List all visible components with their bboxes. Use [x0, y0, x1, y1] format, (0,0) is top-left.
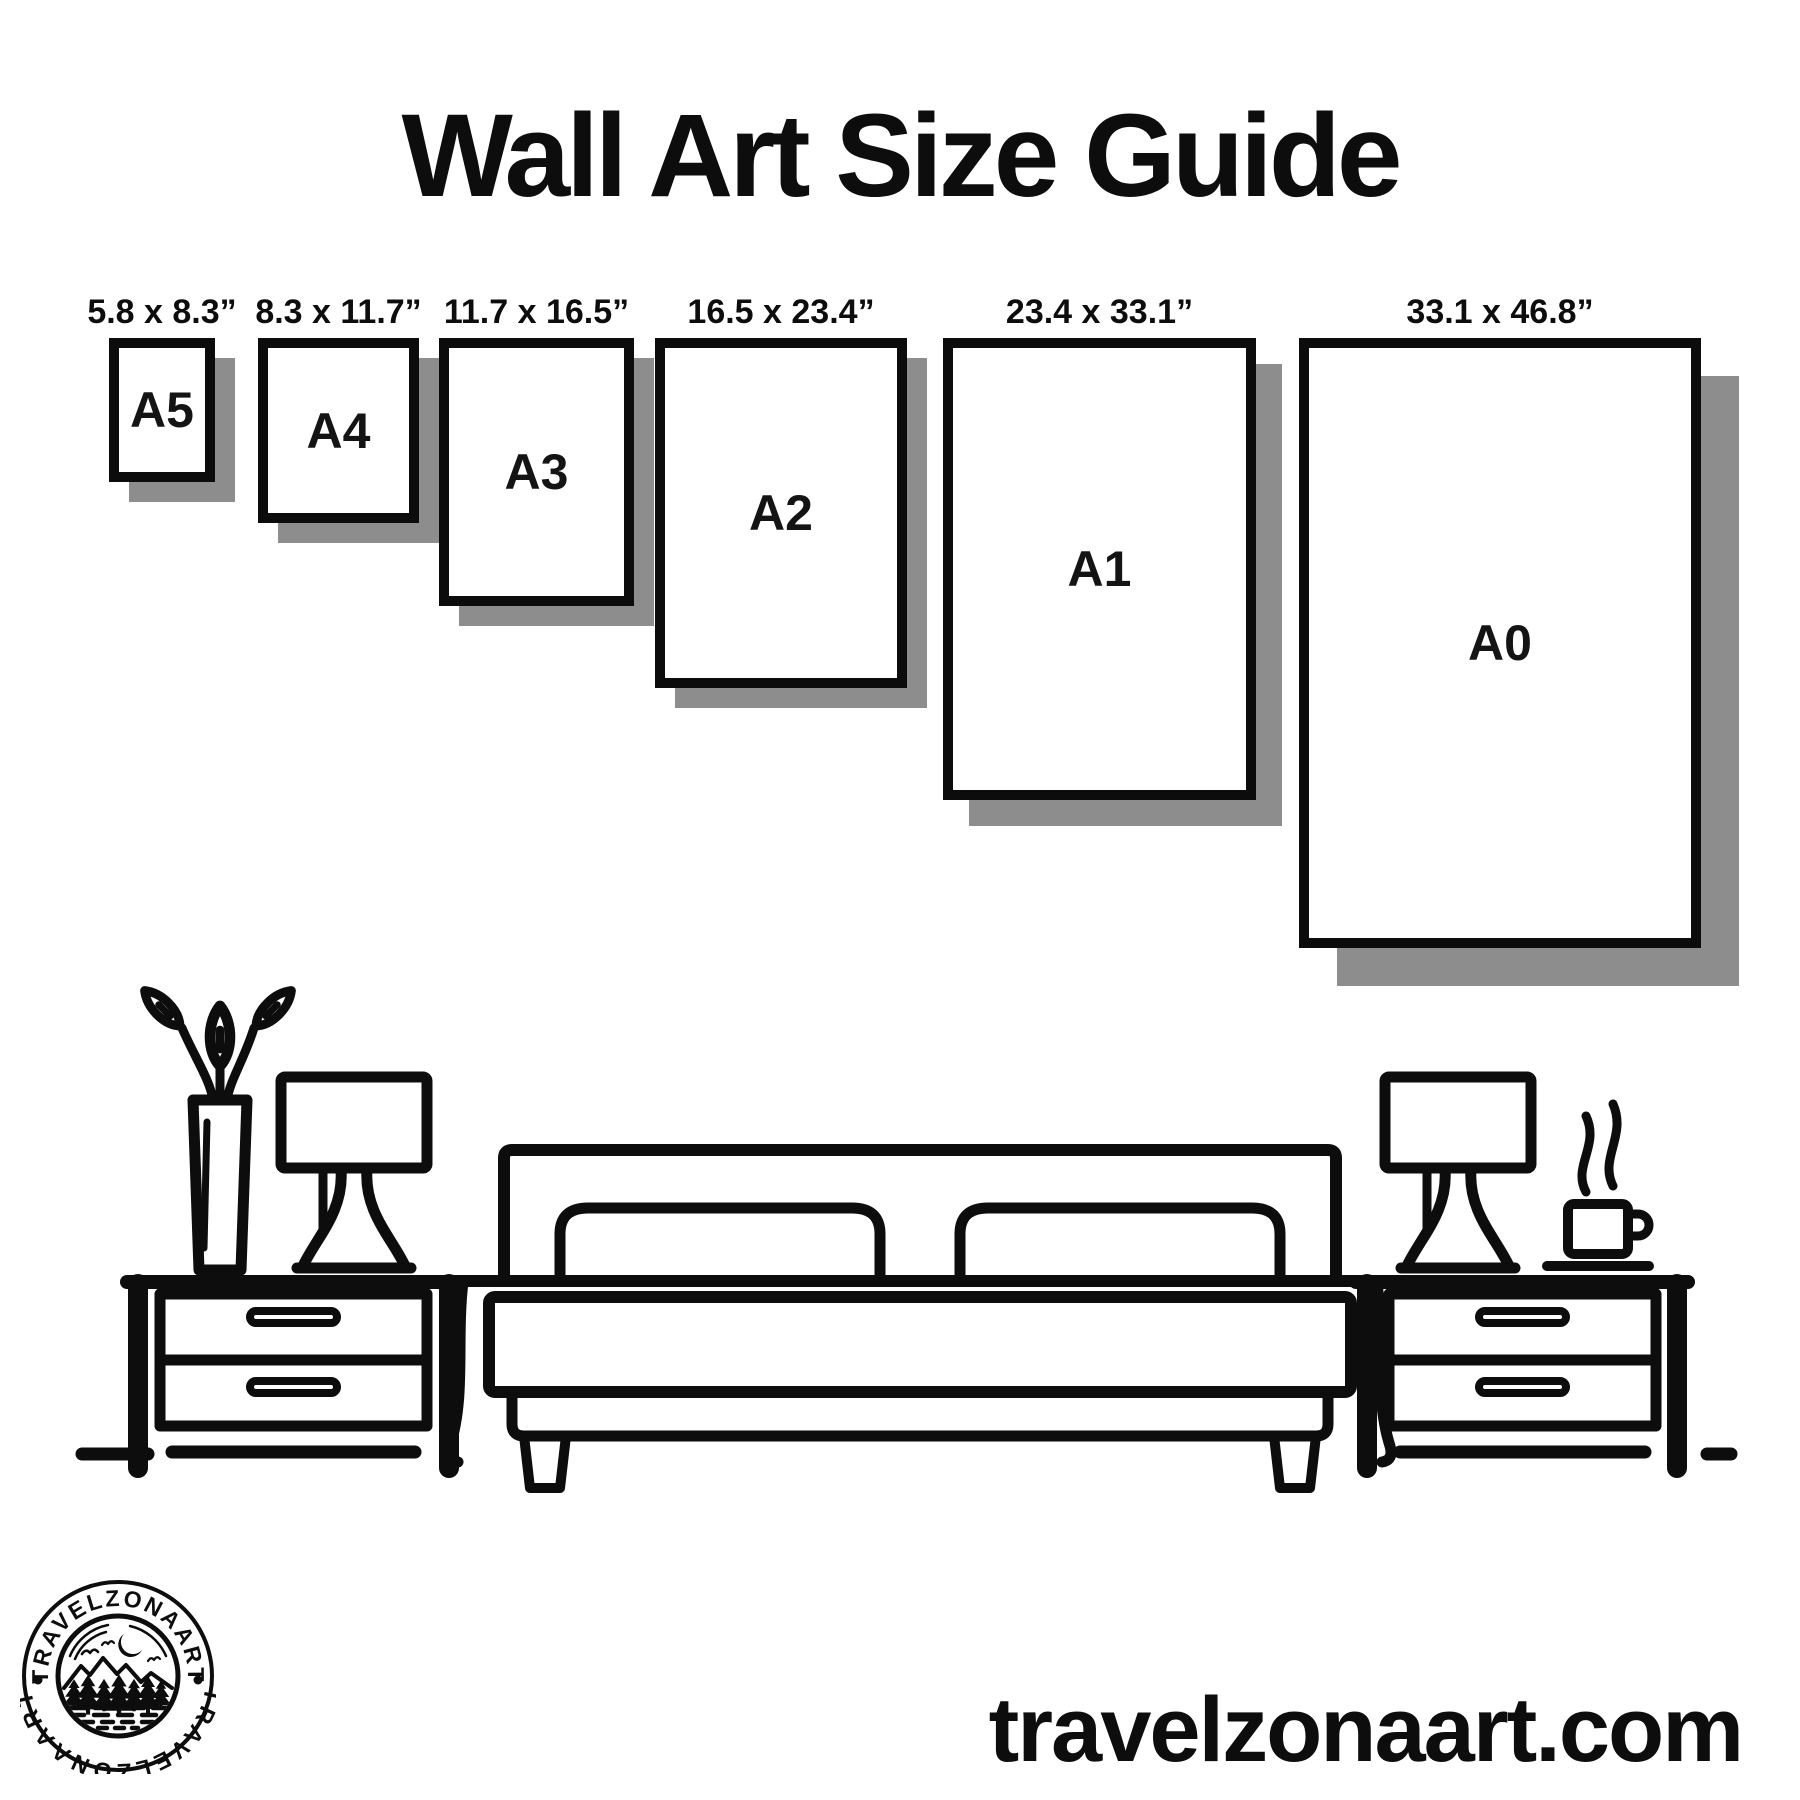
website-url: travelzonaart.com [989, 1678, 1742, 1783]
frame-a0-code: A0 [1468, 614, 1532, 672]
frame-a5: A5 [109, 338, 215, 482]
frame-a2-code: A2 [749, 484, 813, 542]
page-title: Wall Art Size Guide [0, 88, 1800, 224]
bedroom-illustration [60, 960, 1740, 1520]
nightstand-left-icon [127, 1282, 460, 1468]
coffee-cup-icon [1547, 1104, 1649, 1266]
drawer-handle [1479, 1311, 1566, 1323]
frame-a4-code: A4 [307, 402, 371, 460]
drawer-handle [250, 1311, 337, 1323]
brand-logo-badge: TRAVELZONAART TRAVELZONAART [20, 1578, 216, 1774]
frame-a3: A3 [439, 338, 634, 606]
drawer-handle [250, 1381, 337, 1393]
table-lamp-left-icon [281, 1077, 427, 1268]
bed-leg [524, 1436, 566, 1488]
frame-a1: A1 [943, 338, 1256, 800]
frame-a4: A4 [258, 338, 419, 523]
badge-dot-right [194, 1676, 203, 1685]
nightstand-right-icon [1356, 1282, 1688, 1468]
frame-a5-code: A5 [130, 381, 194, 439]
dimension-label-a1: 23.4 x 33.1” [913, 293, 1286, 331]
wall-art-size-guide-poster: Wall Art Size Guide 5.8 x 8.3” 8.3 x 11.… [0, 0, 1800, 1800]
badge-dot-left [34, 1676, 43, 1685]
bed-icon [449, 1150, 1391, 1488]
steam [1582, 1116, 1590, 1192]
bed-leg [1274, 1436, 1316, 1488]
potted-plant-icon [139, 985, 297, 1270]
frame-a1-code: A1 [1068, 540, 1132, 598]
drawer-handle [1479, 1381, 1566, 1393]
dimension-label-a0: 33.1 x 46.8” [1269, 293, 1731, 331]
pillow-left [560, 1208, 880, 1280]
steam [1609, 1104, 1617, 1186]
frame-a0: A0 [1299, 338, 1701, 948]
frame-a2: A2 [655, 338, 907, 688]
table-lamp-right-icon [1385, 1077, 1531, 1268]
headboard [504, 1150, 1336, 1281]
pillow-right [960, 1208, 1280, 1280]
frame-a3-code: A3 [505, 443, 569, 501]
floor-line [82, 1452, 1731, 1454]
dimension-label-a5: 5.8 x 8.3” [79, 293, 245, 331]
dimension-label-a2: 16.5 x 23.4” [625, 293, 937, 331]
